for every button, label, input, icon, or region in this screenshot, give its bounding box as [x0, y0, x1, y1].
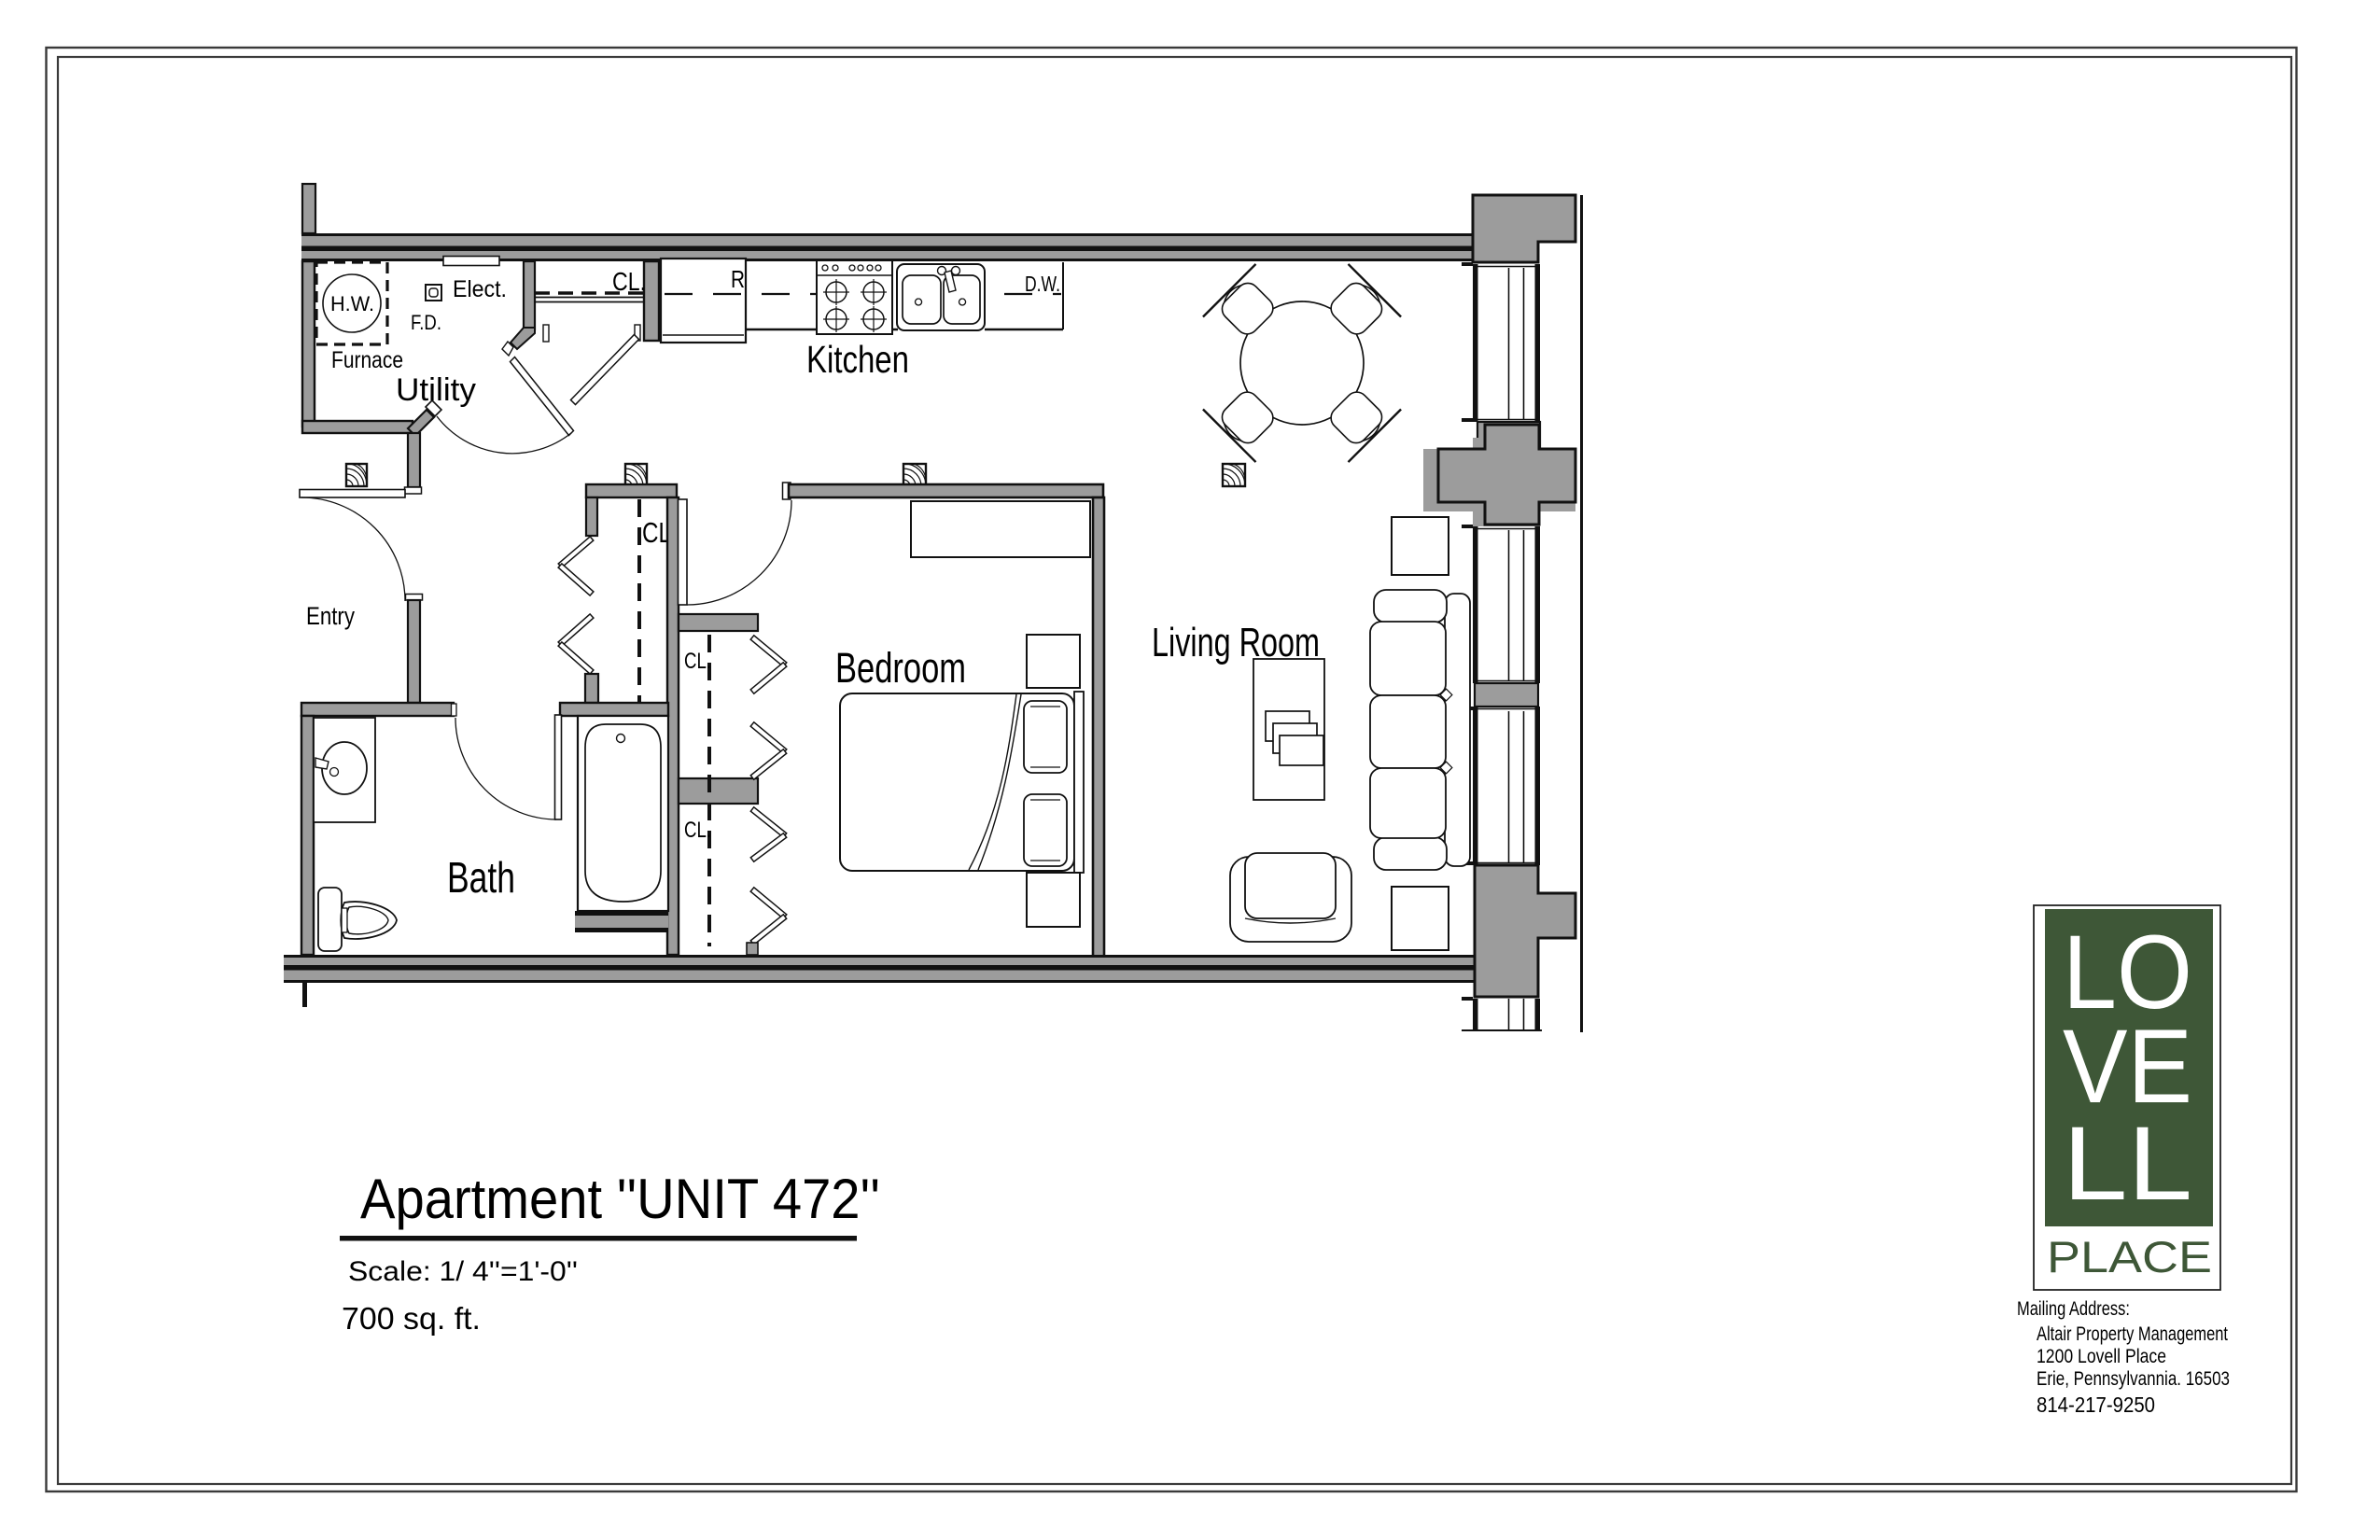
svg-text:Mailing Address:: Mailing Address:: [2017, 1298, 2130, 1320]
svg-text:Kitchen: Kitchen: [806, 338, 909, 381]
svg-text:PLACE: PLACE: [2047, 1232, 2212, 1281]
svg-text:CL.: CL.: [684, 649, 711, 674]
svg-text:700 sq. ft.: 700 sq. ft.: [342, 1301, 481, 1336]
svg-text:F.D.: F.D.: [411, 311, 441, 334]
svg-text:Erie, Pennsylvannia. 16503: Erie, Pennsylvannia. 16503: [2037, 1368, 2230, 1390]
svg-text:LL: LL: [2063, 1105, 2192, 1222]
svg-text:Bedroom: Bedroom: [835, 644, 966, 692]
svg-text:H.W.: H.W.: [330, 292, 374, 315]
svg-text:1200 Lovell Place: 1200 Lovell Place: [2037, 1346, 2166, 1367]
svg-text:D.W.: D.W.: [1025, 272, 1060, 296]
svg-text:CL.: CL.: [612, 267, 646, 296]
svg-text:R: R: [731, 265, 745, 293]
svg-text:Furnace: Furnace: [331, 347, 403, 373]
svg-text:Utility: Utility: [396, 372, 476, 408]
svg-text:Scale: 1/ 4''=1'-0'': Scale: 1/ 4''=1'-0'': [348, 1256, 578, 1287]
svg-text:Altair Property Management: Altair Property Management: [2037, 1323, 2228, 1345]
svg-text:814-217-9250: 814-217-9250: [2037, 1393, 2155, 1417]
svg-text:CL.: CL.: [684, 818, 711, 843]
svg-text:Entry: Entry: [306, 602, 355, 630]
svg-text:Bath: Bath: [447, 853, 515, 902]
svg-text:Elect.: Elect.: [453, 276, 507, 302]
svg-text:Apartment ''UNIT 472'': Apartment ''UNIT 472'': [360, 1168, 880, 1230]
